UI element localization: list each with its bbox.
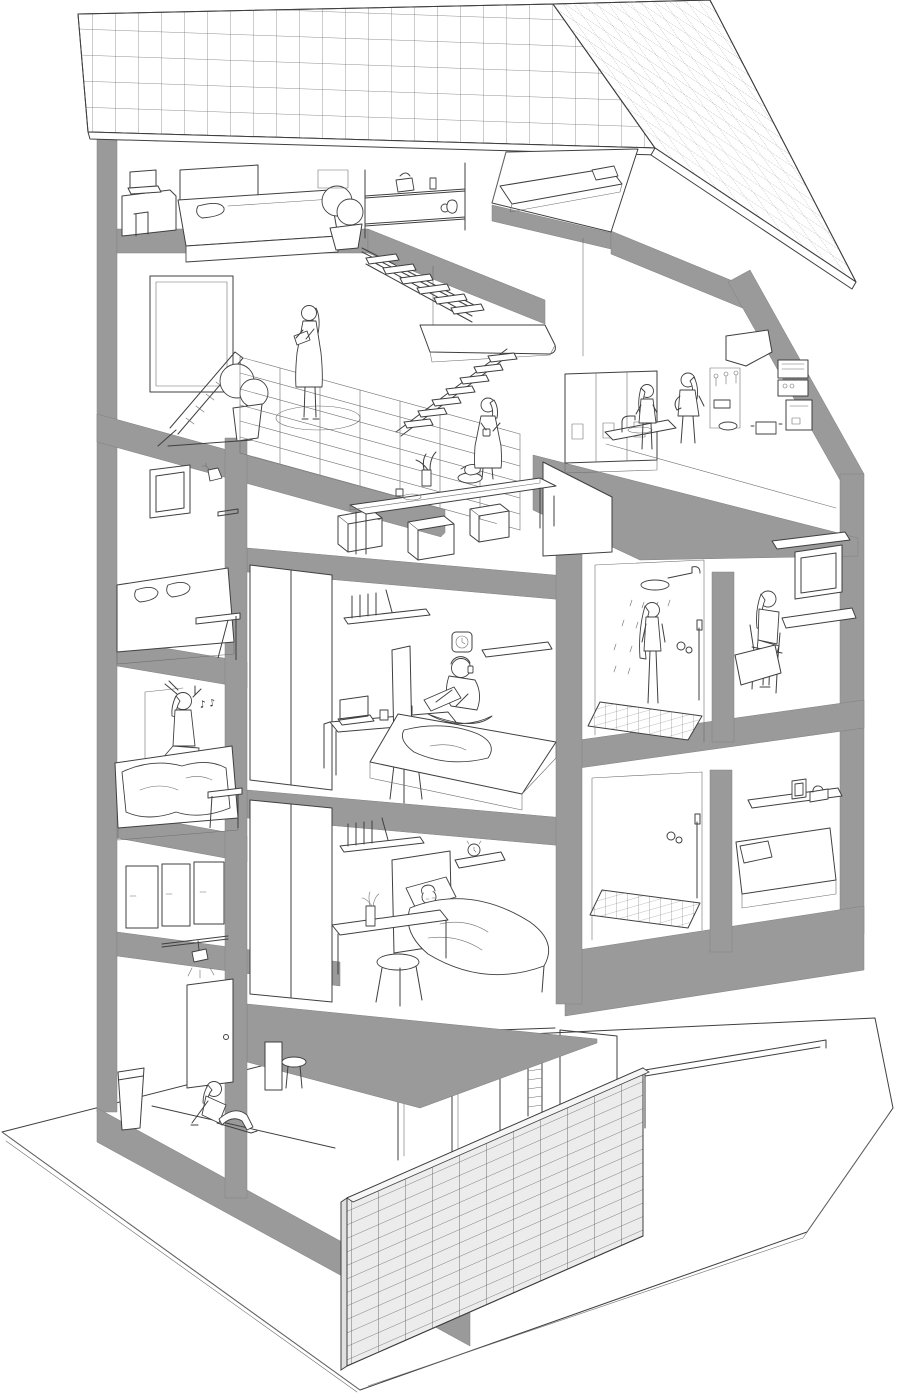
study-window — [795, 545, 842, 599]
landing-platform — [420, 325, 555, 354]
divider-shower — [712, 572, 734, 742]
divider-mid — [556, 535, 582, 1004]
wardrobe — [250, 800, 332, 1002]
photo-frame — [792, 779, 806, 799]
bowl — [719, 422, 737, 430]
cutaway-illustration: Share house cross-section illustration — [0, 0, 900, 1394]
desk-cup — [380, 710, 388, 720]
left-column — [97, 130, 117, 1112]
closet-room — [126, 862, 224, 928]
paper-towel — [714, 400, 730, 408]
cup — [396, 489, 403, 496]
vase-2 — [447, 200, 457, 213]
window-niche — [150, 465, 190, 518]
umbrella-bin — [118, 1068, 144, 1130]
wall-end-cap — [341, 1198, 347, 1370]
vase — [422, 470, 431, 486]
divider-bath — [710, 770, 732, 952]
coffee-machine — [786, 400, 812, 430]
front-door — [187, 979, 233, 1088]
laptop — [128, 170, 161, 194]
bottle — [430, 178, 436, 189]
wardrobe — [250, 565, 332, 790]
illustration-stage: Share house cross-section illustration — [0, 0, 900, 1394]
music-notes: ♪ ♪ — [199, 698, 216, 711]
plant-pot — [330, 224, 362, 250]
pencil-cup — [366, 906, 375, 926]
appliance-tower — [778, 360, 808, 396]
wall-clock — [452, 632, 472, 652]
